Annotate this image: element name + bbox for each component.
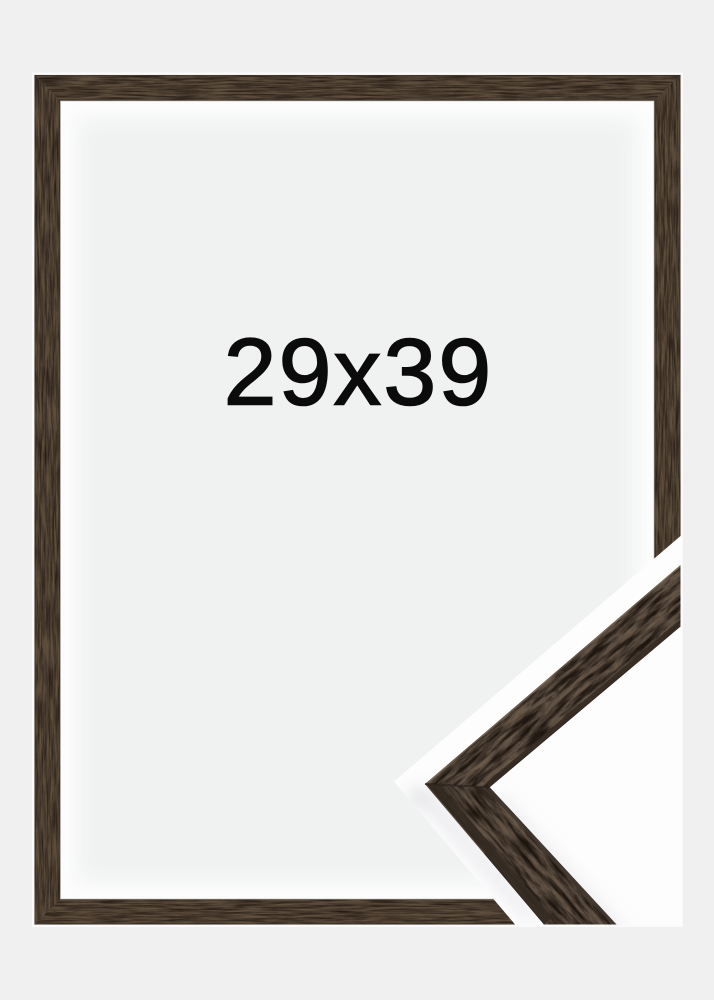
svg-text:29x39: 29x39 bbox=[224, 320, 494, 426]
